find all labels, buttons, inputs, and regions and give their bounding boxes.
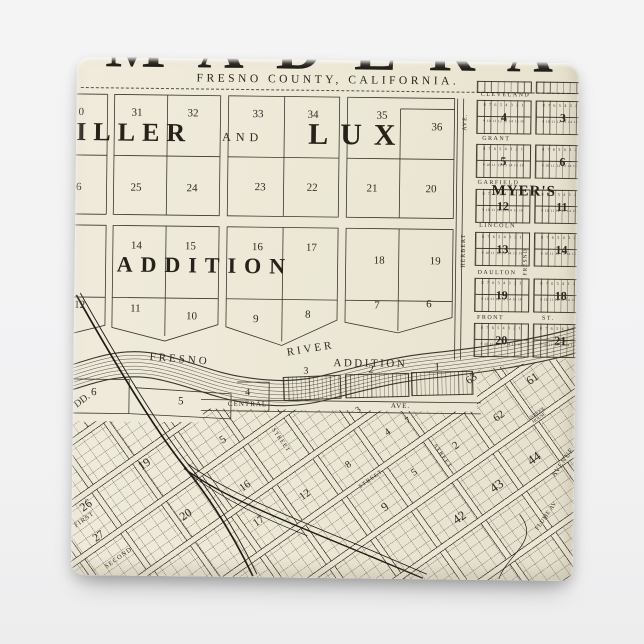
block-30-label: 0 [78,107,84,118]
street-herbert-vertical: HERBERT [461,234,467,268]
addition-name-part1: ILLER [76,119,192,146]
block-23-label: 23 [255,182,266,193]
riverblock-6-label: 6 [91,387,97,398]
street-cleveland: CLEVELAND [481,92,531,99]
street-fresno-vertical: FRESNO [524,248,530,275]
block-17-label: 17 [306,243,317,254]
street-front: FRONT [477,315,504,321]
block-33-label: 33 [252,109,263,120]
addition-name-part3: LUX [308,120,408,151]
block-6-label: 6 [426,299,432,310]
block-25-label: 25 [131,183,142,194]
street-lincoln: LINCOLN [479,223,516,229]
block-36-label: 36 [431,122,442,133]
block-16-label: 16 [252,242,263,253]
block-18-label: 18 [374,256,385,267]
block-22-label: 22 [307,183,318,194]
street-central-ave: AVE. [391,403,410,410]
block-7-label: 7 [374,301,380,312]
street-ave-vertical: AVE. [462,114,468,131]
street-daulton: DAULTON [478,270,517,276]
addition-name-part2: AND [222,131,263,144]
block-24-label: 24 [187,183,198,194]
riverblock-5-label: 5 [178,396,184,407]
map-magnet: MADERA FRESNO COUNTY, CALIFORNIA. [71,57,579,581]
street-central: CENTRAL [228,401,267,408]
riverblock-4-label: 4 [245,388,250,398]
block-32-label: 32 [187,108,198,119]
block-10-label: 10 [186,311,197,322]
block-21-label: 21 [367,183,378,194]
block-14-label: 14 [131,241,142,252]
block-20-label: 20 [426,184,437,195]
block-26-label: 26 [71,182,82,193]
myers-addition-title: MYER'S [491,184,556,200]
photo-background: MADERA FRESNO COUNTY, CALIFORNIA. [0,0,644,644]
block-12-label: 12 [74,300,85,311]
block-19-label: 19 [430,256,441,267]
street-grant: GRANT [482,136,510,142]
block-34-label: 34 [307,110,318,121]
block-35-label: 35 [376,111,387,122]
street-front-st: ST. [542,316,555,322]
addition-name-part4: ADDITION [117,253,294,277]
riverblock-3-label: 3 [303,367,308,377]
block-8-label: 8 [305,310,311,321]
block-15-label: 15 [185,241,196,252]
riverblock-1-label: 1 [434,362,440,373]
block-9-label: 9 [253,314,259,325]
block-31-label: 31 [131,108,142,119]
block-11-label: 11 [130,304,141,315]
riverblock-2-label: 2 [368,365,374,376]
